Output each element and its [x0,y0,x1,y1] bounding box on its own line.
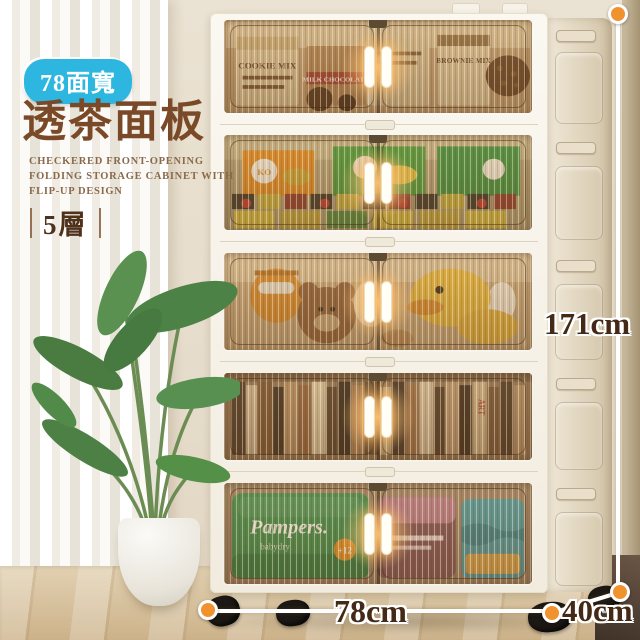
height-dimension-line [616,14,620,592]
side-recess [555,402,603,470]
product-title: 透茶面板 [22,99,206,145]
hinge-clip [369,253,387,261]
depth-label: 40cm [562,595,633,626]
hinge-clip [369,135,387,143]
tier-4-handles[interactable] [364,396,392,438]
subtitle-line-1: CHECKERED FRONT-OPENING [29,154,234,169]
cabinet-side-panel [548,18,612,592]
decorative-bar [99,208,101,238]
front-latch [365,467,395,477]
tier-2-window: KO [224,135,532,230]
product-scene: COOKIE MIX MILK CHOCOLATE BROWNIE MIX [0,0,640,640]
cabinet-front: COOKIE MIX MILK CHOCOLATE BROWNIE MIX [210,13,548,593]
hinge-clip [369,483,387,491]
tier-1-handles[interactable] [364,46,392,88]
decorative-bar [30,208,32,238]
side-recess [555,52,603,124]
height-label: 171cm [544,308,630,339]
tier-5-window: Pampers. babydry +12 [224,483,532,584]
layer-count: 5層 [30,203,101,242]
dimension-dot-front-left [198,600,218,620]
tier-3-window [224,253,532,350]
tier-3-handles[interactable] [364,281,392,323]
subtitle-line-3: FLIP-UP DESIGN [29,184,234,199]
tier-2-handles[interactable] [364,162,392,204]
side-recess [555,166,603,240]
side-recess [555,512,603,586]
dimension-dot-front-right [542,603,562,623]
product-subtitle: CHECKERED FRONT-OPENING FOLDING STORAGE … [29,154,234,199]
subtitle-line-2: FOLDING STORAGE CABINET WITH [29,169,234,184]
width-label: 78cm [334,595,407,627]
side-latch [556,142,596,154]
layer-count-label: 5層 [43,203,88,242]
tier-1-window: COOKIE MIX MILK CHOCOLATE BROWNIE MIX [224,20,532,113]
hinge-clip [369,20,387,28]
side-latch [556,30,596,42]
side-latch [556,378,596,390]
front-latch [365,120,395,130]
tier-5-handles[interactable] [364,513,392,555]
side-latch [556,488,596,500]
dimension-dot-top [608,4,628,24]
front-latch [365,357,395,367]
front-latch [365,237,395,247]
side-latch [556,260,596,272]
tier-4-window: ART [224,373,532,460]
